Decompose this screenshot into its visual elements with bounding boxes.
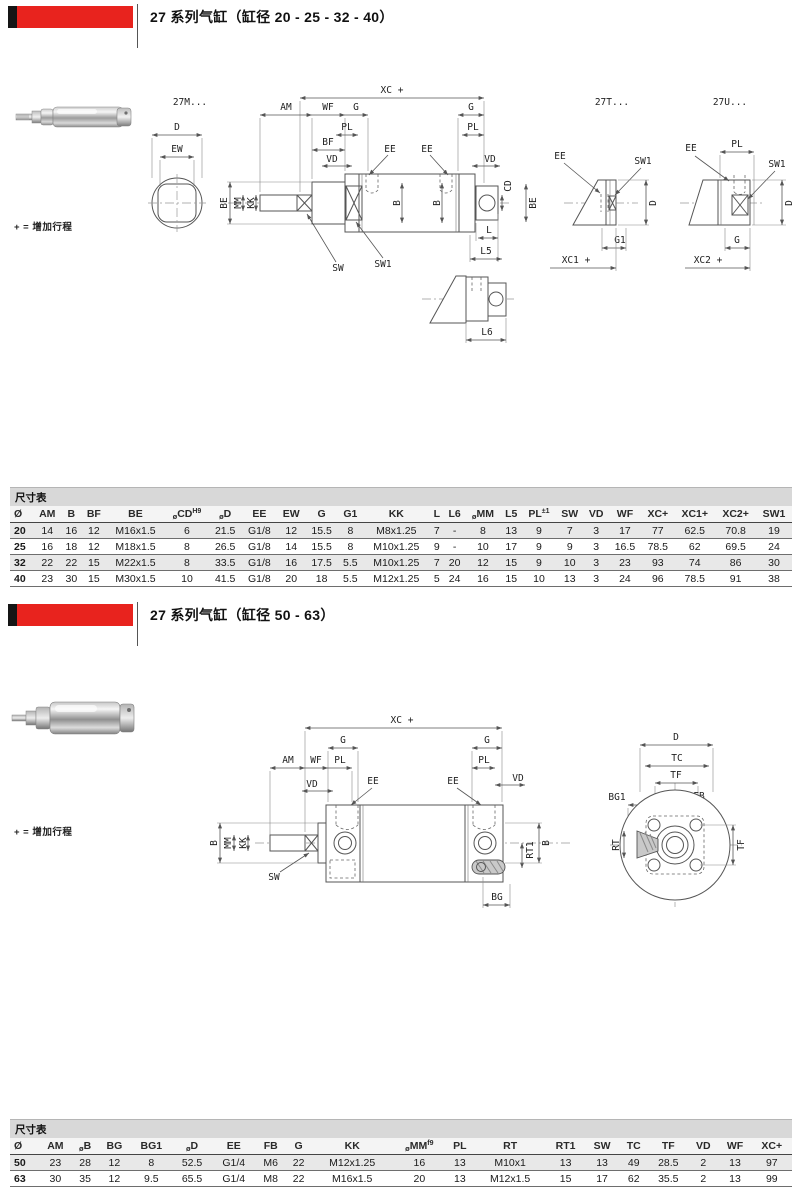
- dim-label-kk: KK: [246, 197, 257, 209]
- dim-label-pl: PL: [478, 755, 490, 766]
- stroke-note: + = 增加行程: [14, 824, 72, 838]
- dimension-value: 8: [338, 539, 363, 555]
- dimension-value: 12: [98, 1155, 130, 1171]
- dim-label-xc: XC +: [391, 715, 414, 726]
- dimension-value: 15.5: [305, 539, 338, 555]
- end-view-20-40: 27M... D EW: [148, 97, 207, 232]
- dimension-value: M12x1.25: [363, 571, 430, 587]
- dim-label-tc: TC: [671, 753, 682, 764]
- dim-label-mm: MM: [223, 837, 234, 849]
- dimension-value: 8: [338, 523, 363, 539]
- dimension-value: 62.5: [674, 523, 715, 539]
- dim-label-g: G: [468, 102, 474, 113]
- dimension-value: 78.5: [641, 539, 674, 555]
- column-header-be: BE: [106, 506, 165, 523]
- dim-label-am: AM: [282, 755, 294, 766]
- column-header-bg: BG: [98, 1138, 130, 1155]
- dim-label-l: L: [486, 225, 492, 236]
- dim-label-pl: PL: [341, 122, 353, 133]
- dimension-value: 65.5: [172, 1171, 212, 1187]
- dimension-value: 77: [641, 523, 674, 539]
- column-header-xc+: XC+: [752, 1138, 792, 1155]
- dimension-value: 97: [752, 1155, 792, 1171]
- dim-label-g: G: [340, 735, 346, 746]
- dimension-value: 12: [98, 1171, 130, 1187]
- dimension-value: 38: [756, 571, 792, 587]
- dimension-value: 52.5: [172, 1155, 212, 1171]
- dimension-value: 13: [556, 571, 584, 587]
- dimension-value: 3: [584, 555, 609, 571]
- bore-size: 20: [10, 523, 34, 539]
- partial-view-27u: 27U... PL EE SW1 D G XC2 +: [680, 97, 795, 271]
- dimension-value: 78.5: [674, 571, 715, 587]
- dim-label-pl: PL: [731, 139, 743, 150]
- column-header-am: AM: [39, 1138, 72, 1155]
- column-header-bf: BF: [82, 506, 106, 523]
- dim-label-ee: EE: [384, 144, 396, 155]
- dimension-value: G1/8: [242, 539, 278, 555]
- bore-size: 32: [10, 555, 34, 571]
- column-header-ew: EW: [277, 506, 305, 523]
- column-header-sw1: SW1: [756, 506, 792, 523]
- dimension-value: 22: [61, 555, 82, 571]
- dimension-table: ØAMBBFBEøCDH9øDEEEWGG1KKLL6øMML5PL±1SWVD…: [10, 506, 792, 587]
- foot-detail-l6: L6: [422, 276, 514, 343]
- dimension-value: 15: [82, 555, 106, 571]
- dim-label-bf: BF: [322, 137, 334, 148]
- dimension-value: 96: [641, 571, 674, 587]
- dimension-value: M30x1.5: [106, 571, 165, 587]
- column-header-l6: L6: [444, 506, 466, 523]
- dimension-value: 10: [165, 571, 209, 587]
- dim-label-sw1: SW1: [768, 159, 785, 170]
- dim-label-l6: L6: [481, 327, 493, 338]
- dim-label-g: G: [734, 235, 740, 246]
- column-header-xc2+: XC2+: [715, 506, 756, 523]
- dim-label-cd: CD: [503, 180, 514, 192]
- dimension-value: 23: [609, 555, 642, 571]
- dimension-value: 23: [39, 1155, 72, 1171]
- table-row-25: 25161812M18x1.5826.5G1/81415.58M10x1.259…: [10, 539, 792, 555]
- dim-label-mm: MM: [233, 197, 244, 209]
- dimension-value: 35.5: [648, 1171, 688, 1187]
- dim-label-b: B: [392, 200, 403, 206]
- dim-label-sw1: SW1: [634, 156, 651, 167]
- header-divider: [137, 4, 138, 48]
- dimension-value: G1/8: [242, 571, 278, 587]
- dimension-value: 20: [277, 571, 305, 587]
- dimension-value: G1/4: [212, 1155, 256, 1171]
- dimension-value: 26.5: [209, 539, 242, 555]
- dimension-value: 24: [756, 539, 792, 555]
- dimension-value: 20: [444, 555, 466, 571]
- dimension-value: 30: [756, 555, 792, 571]
- dimension-value: 13: [446, 1171, 474, 1187]
- dimension-value: 74: [674, 555, 715, 571]
- dimension-value: -: [444, 539, 466, 555]
- header-red-bar: [8, 6, 133, 28]
- dimension-value: M22x1.5: [106, 555, 165, 571]
- dimension-value: 15: [546, 1171, 585, 1187]
- dimension-value: -: [444, 523, 466, 539]
- dimension-value: 3: [584, 523, 609, 539]
- dimension-value: M10x1: [474, 1155, 546, 1171]
- column-header-b: B: [61, 506, 82, 523]
- dimension-value: 9: [522, 523, 556, 539]
- column-header-vd: VD: [584, 506, 609, 523]
- dimension-value: 5: [430, 571, 444, 587]
- dim-label-ee: EE: [447, 776, 459, 787]
- dimension-value: 18: [61, 539, 82, 555]
- dimension-value: 8: [165, 555, 209, 571]
- column-header-tc: TC: [619, 1138, 648, 1155]
- dimension-value: 16: [277, 555, 305, 571]
- dim-label-b: B: [541, 840, 552, 846]
- dimension-value: 10: [556, 555, 584, 571]
- column-header-tf: TF: [648, 1138, 688, 1155]
- table-row-40: 40233015M30x1.51041.5G1/820185.5M12x1.25…: [10, 571, 792, 587]
- dimension-value: 17: [500, 539, 522, 555]
- dim-label-xc2: XC2 +: [694, 255, 723, 266]
- dimension-value: 13: [546, 1155, 585, 1171]
- dim-label-b: B: [432, 200, 443, 206]
- dim-label-tf: TF: [670, 770, 682, 781]
- dim-label-rt: RT: [611, 839, 622, 851]
- dimension-value: 3: [584, 539, 609, 555]
- dimension-value: 16: [465, 571, 500, 587]
- dimension-value: M16x1.5: [311, 1171, 393, 1187]
- column-header-ø: Ø: [10, 1138, 39, 1155]
- dim-label-xc1: XC1 +: [562, 255, 591, 266]
- side-view-50-63: XC + G G AM WF PL PL VD VD EE EE: [209, 715, 570, 908]
- dimension-drawing-20-40: 27M... D EW: [140, 78, 800, 355]
- dim-label-vd: VD: [326, 154, 338, 165]
- column-header-vd: VD: [688, 1138, 718, 1155]
- column-header-g: G: [286, 1138, 312, 1155]
- dimension-value: 17: [585, 1171, 619, 1187]
- header-black-tab: [8, 604, 17, 626]
- column-header-rt1: RT1: [546, 1138, 585, 1155]
- column-header-mm: øMMf9: [393, 1138, 446, 1155]
- dim-label-ee: EE: [685, 143, 697, 154]
- dimension-value: 33.5: [209, 555, 242, 571]
- dimension-value: 2: [688, 1171, 718, 1187]
- dimension-value: 19: [756, 523, 792, 539]
- dimension-value: 14: [277, 539, 305, 555]
- header-black-tab: [8, 6, 17, 28]
- dim-label-am: AM: [280, 102, 292, 113]
- column-header-xc1+: XC1+: [674, 506, 715, 523]
- table-row-20: 20141612M16x1.5621.5G1/81215.58M8x1.257-…: [10, 523, 792, 539]
- column-header-sw: SW: [556, 506, 584, 523]
- dimension-value: 7: [430, 523, 444, 539]
- dimension-value: G1/8: [242, 555, 278, 571]
- dim-label-g: G: [484, 735, 490, 746]
- dimension-value: 16.5: [609, 539, 642, 555]
- dimension-value: 35: [72, 1171, 98, 1187]
- dimension-value: M10x1.25: [363, 555, 430, 571]
- dimension-value: 49: [619, 1155, 648, 1171]
- dimension-value: G1/8: [242, 523, 278, 539]
- dimension-value: 24: [444, 571, 466, 587]
- dimension-value: 99: [752, 1171, 792, 1187]
- column-header-sw: SW: [585, 1138, 619, 1155]
- dimension-value: 12: [465, 555, 500, 571]
- column-header-g1: G1: [338, 506, 363, 523]
- column-header-xc+: XC+: [641, 506, 674, 523]
- dimension-value: 3: [584, 571, 609, 587]
- dim-label-vd: VD: [484, 154, 496, 165]
- header-red-bar: [8, 604, 133, 626]
- table-caption: 尺寸表: [10, 1119, 792, 1138]
- dim-label-d: D: [673, 732, 679, 743]
- dimension-value: 16: [61, 523, 82, 539]
- partial-view-27t: 27T... EE SW1 D G1 XC1 +: [550, 97, 659, 271]
- dimension-value: 13: [718, 1171, 751, 1187]
- dim-label-vd: VD: [306, 779, 318, 790]
- dimension-value: 41.5: [209, 571, 242, 587]
- dimension-value: 7: [430, 555, 444, 571]
- column-header-wf: WF: [609, 506, 642, 523]
- dimension-value: 12: [82, 523, 106, 539]
- dim-label-xc: XC +: [381, 85, 404, 96]
- dimension-value: M12x1.5: [474, 1171, 546, 1187]
- dimension-value: 8: [165, 539, 209, 555]
- stroke-note: + = 增加行程: [14, 219, 72, 233]
- column-header-b: øB: [72, 1138, 98, 1155]
- dimension-value: 10: [522, 571, 556, 587]
- dimension-value: 12: [82, 539, 106, 555]
- dimension-value: 22: [286, 1155, 312, 1171]
- dimension-table-20-40: 尺寸表 ØAMBBFBEøCDH9øDEEEWGG1KKLL6øMML5PL±1…: [10, 487, 792, 587]
- dimension-value: 15: [500, 571, 522, 587]
- dimension-value: M18x1.5: [106, 539, 165, 555]
- column-header-l: L: [430, 506, 444, 523]
- column-header-cd: øCDH9: [165, 506, 209, 523]
- column-header-pl: PL: [446, 1138, 474, 1155]
- column-header-ee: EE: [212, 1138, 256, 1155]
- dimension-value: 28: [72, 1155, 98, 1171]
- product-photo-large-cylinder: [10, 696, 138, 745]
- dimension-value: 62: [619, 1171, 648, 1187]
- dimension-value: M8: [256, 1171, 286, 1187]
- dim-label-d: D: [174, 122, 180, 133]
- dimension-value: 10: [465, 539, 500, 555]
- dimension-value: 13: [500, 523, 522, 539]
- dimension-value: 8: [465, 523, 500, 539]
- column-header-d: øD: [172, 1138, 212, 1155]
- bore-size: 50: [10, 1155, 39, 1171]
- dim-label-l5: L5: [480, 246, 491, 257]
- dimension-value: 24: [609, 571, 642, 587]
- dim-label-sw: SW: [332, 263, 344, 274]
- dim-label-sw: SW: [268, 872, 280, 883]
- dimension-value: 13: [585, 1155, 619, 1171]
- dim-label-m: 27M...: [173, 97, 207, 108]
- dim-label-wf: WF: [310, 755, 322, 766]
- table-row-63: 633035129.565.5G1/4M822M16x1.52013M12x1.…: [10, 1171, 792, 1187]
- dim-label-kk: KK: [238, 837, 249, 849]
- column-header-l5: L5: [500, 506, 522, 523]
- dim-label-bg: BG: [491, 892, 503, 903]
- dimension-value: 21.5: [209, 523, 242, 539]
- dimension-value: 22: [286, 1171, 312, 1187]
- dimension-value: G1/4: [212, 1171, 256, 1187]
- dimension-value: 6: [165, 523, 209, 539]
- dimension-value: M8x1.25: [363, 523, 430, 539]
- dimension-value: 8: [130, 1155, 172, 1171]
- dimension-value: 13: [446, 1155, 474, 1171]
- dimension-value: 9.5: [130, 1171, 172, 1187]
- dimension-value: 70.8: [715, 523, 756, 539]
- dim-label-t: 27T...: [595, 97, 629, 108]
- dimension-value: 30: [39, 1171, 72, 1187]
- column-header-ee: EE: [242, 506, 278, 523]
- column-header-kk: KK: [311, 1138, 393, 1155]
- product-photo-mini-cylinder: [14, 99, 136, 140]
- column-header-fb: FB: [256, 1138, 286, 1155]
- dim-label-b: B: [209, 840, 220, 846]
- dimension-value: 2: [688, 1155, 718, 1171]
- dim-label-g: G: [353, 102, 359, 113]
- dimension-value: 14: [34, 523, 61, 539]
- dimension-value: 16: [393, 1155, 446, 1171]
- dimension-value: 17: [609, 523, 642, 539]
- section1-title: 27 系列气缸（缸径 20 - 25 - 32 - 40）: [150, 7, 394, 27]
- dimension-value: 23: [34, 571, 61, 587]
- side-view-27m: XC + AM WF G G PL PL BF VD VD EE: [219, 85, 539, 274]
- catalog-page: 27 系列气缸（缸径 20 - 25 - 32 - 40）: [0, 0, 800, 1188]
- dimension-table-50-63: 尺寸表 ØAMøBBGBG1øDEEFBGKKøMMf9PLRTRT1SWTCT…: [10, 1119, 792, 1187]
- dim-label-pl: PL: [467, 122, 479, 133]
- dim-label-ee: EE: [554, 151, 566, 162]
- dimension-value: 69.5: [715, 539, 756, 555]
- column-header-bg1: BG1: [130, 1138, 172, 1155]
- dimension-table: ØAMøBBGBG1øDEEFBGKKøMMf9PLRTRT1SWTCTFVDW…: [10, 1138, 792, 1187]
- column-header-g: G: [305, 506, 338, 523]
- dim-label-ew: EW: [171, 144, 183, 155]
- dimension-value: 30: [61, 571, 82, 587]
- column-header-rt: RT: [474, 1138, 546, 1155]
- dimension-value: 16: [34, 539, 61, 555]
- dimension-value: 5.5: [338, 571, 363, 587]
- dimension-value: 5.5: [338, 555, 363, 571]
- dimension-value: 15.5: [305, 523, 338, 539]
- dimension-value: 15: [500, 555, 522, 571]
- dimension-value: M12x1.25: [311, 1155, 393, 1171]
- column-header-pl: PL±1: [522, 506, 556, 523]
- dim-label-d: D: [648, 200, 659, 206]
- dim-label-ee: EE: [421, 144, 433, 155]
- section1-header: 27 系列气缸（缸径 20 - 25 - 32 - 40）: [0, 6, 800, 52]
- bore-size: 63: [10, 1171, 39, 1187]
- dimension-value: 22: [34, 555, 61, 571]
- dimension-value: 28.5: [648, 1155, 688, 1171]
- dimension-value: 86: [715, 555, 756, 571]
- dimension-value: 18: [305, 571, 338, 587]
- dimension-value: 7: [556, 523, 584, 539]
- dimension-value: 13: [718, 1155, 751, 1171]
- dimension-value: M10x1.25: [363, 539, 430, 555]
- dimension-value: 17.5: [305, 555, 338, 571]
- section2-header: 27 系列气缸（缸径 50 - 63）: [0, 604, 800, 650]
- column-header-am: AM: [34, 506, 61, 523]
- front-view-50-63: D TC TF BG1 FB RT TF: [608, 732, 747, 907]
- column-header-kk: KK: [363, 506, 430, 523]
- dim-label-sw1: SW1: [374, 259, 391, 270]
- dimension-value: M16x1.5: [106, 523, 165, 539]
- column-header-mm: øMM: [465, 506, 500, 523]
- table-row-32: 32222215M22x1.5833.5G1/81617.55.5M10x1.2…: [10, 555, 792, 571]
- dim-label-be: BE: [528, 197, 539, 209]
- dim-label-ee: EE: [367, 776, 379, 787]
- dimension-value: 62: [674, 539, 715, 555]
- dimension-value: 9: [522, 555, 556, 571]
- dim-label-wf: WF: [322, 102, 334, 113]
- section2-title: 27 系列气缸（缸径 50 - 63）: [150, 605, 335, 625]
- header-divider: [137, 602, 138, 646]
- dim-label-be: BE: [219, 197, 230, 209]
- dimension-value: 9: [430, 539, 444, 555]
- dimension-value: M6: [256, 1155, 286, 1171]
- dim-label-rt1: RT1: [525, 841, 536, 858]
- dimension-value: 93: [641, 555, 674, 571]
- table-header-row: ØAMBBFBEøCDH9øDEEEWGG1KKLL6øMML5PL±1SWVD…: [10, 506, 792, 523]
- table-row-50: 50232812852.5G1/4M622M12x1.251613M10x113…: [10, 1155, 792, 1171]
- column-header-ø: Ø: [10, 506, 34, 523]
- table-caption: 尺寸表: [10, 487, 792, 506]
- dimension-drawing-50-63: XC + G G AM WF PL PL VD VD EE EE: [200, 710, 800, 935]
- dim-label-bg1: BG1: [608, 792, 625, 803]
- column-header-d: øD: [209, 506, 242, 523]
- dimension-value: 12: [277, 523, 305, 539]
- dimension-value: 9: [522, 539, 556, 555]
- table-header-row: ØAMøBBGBG1øDEEFBGKKøMMf9PLRTRT1SWTCTFVDW…: [10, 1138, 792, 1155]
- column-header-wf: WF: [718, 1138, 751, 1155]
- bore-size: 40: [10, 571, 34, 587]
- bore-size: 25: [10, 539, 34, 555]
- dimension-value: 15: [82, 571, 106, 587]
- dim-label-u: 27U...: [713, 97, 747, 108]
- dimension-value: 9: [556, 539, 584, 555]
- dim-label-vd: VD: [512, 773, 524, 784]
- dimension-value: 20: [393, 1171, 446, 1187]
- dim-label-tf: TF: [736, 839, 747, 851]
- dimension-value: 91: [715, 571, 756, 587]
- dim-label-d: D: [784, 200, 795, 206]
- dim-label-pl: PL: [334, 755, 346, 766]
